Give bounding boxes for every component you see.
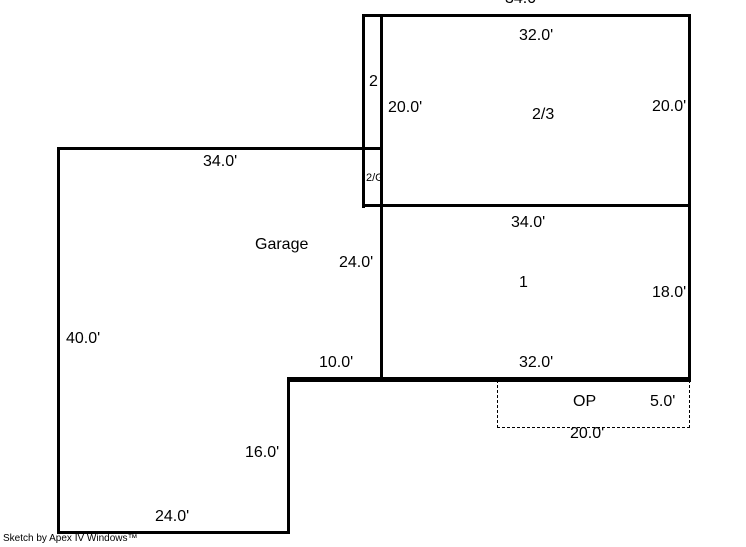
dim-garage-right: 24.0' — [339, 255, 373, 271]
area-label-second-floor: 2 — [369, 74, 378, 90]
wall-strip-right-inner — [380, 14, 383, 378]
dim-first-right: 18.0' — [652, 285, 686, 301]
sketch-credit: Sketch by Apex IV Windows™ — [3, 534, 138, 544]
area-label-open-porch: OP — [573, 394, 596, 410]
wall-upper-lower-separator — [362, 204, 691, 207]
dim-upper-top-inner: 32.0' — [519, 28, 553, 44]
area-label-second-over-garage: 2/G — [366, 173, 384, 184]
dim-first-top: 34.0' — [511, 215, 545, 231]
wall-garage-left — [57, 147, 60, 534]
area-label-second-third: 2/3 — [532, 107, 554, 123]
dim-garage-bottom: 24.0' — [155, 509, 189, 525]
dim-upper-left: 20.0' — [388, 100, 422, 116]
wall-garage-step-vertical — [287, 377, 290, 534]
dim-first-bottom: 32.0' — [519, 355, 553, 371]
dim-garage-lower-right: 16.0' — [245, 445, 279, 461]
dim-porch-right: 5.0' — [650, 394, 675, 410]
wall-right-main — [688, 14, 691, 378]
dim-porch-bottom: 20.0' — [570, 426, 604, 442]
dim-upper-right: 20.0' — [652, 99, 686, 115]
wall-garage-top — [57, 147, 383, 150]
dim-upper-top-outer: 34.0' — [505, 0, 539, 7]
sketch-canvas: 34.0' 32.0' 2 20.0' 2/3 20.0' 2/G 34.0' … — [0, 0, 746, 547]
wall-strip-left — [362, 14, 365, 208]
dim-garage-top: 34.0' — [203, 154, 237, 170]
wall-upper-top — [362, 14, 691, 17]
dim-garage-step: 10.0' — [319, 355, 353, 371]
area-label-garage: Garage — [255, 237, 308, 253]
area-label-first-floor: 1 — [519, 275, 528, 291]
dim-garage-left: 40.0' — [66, 331, 100, 347]
